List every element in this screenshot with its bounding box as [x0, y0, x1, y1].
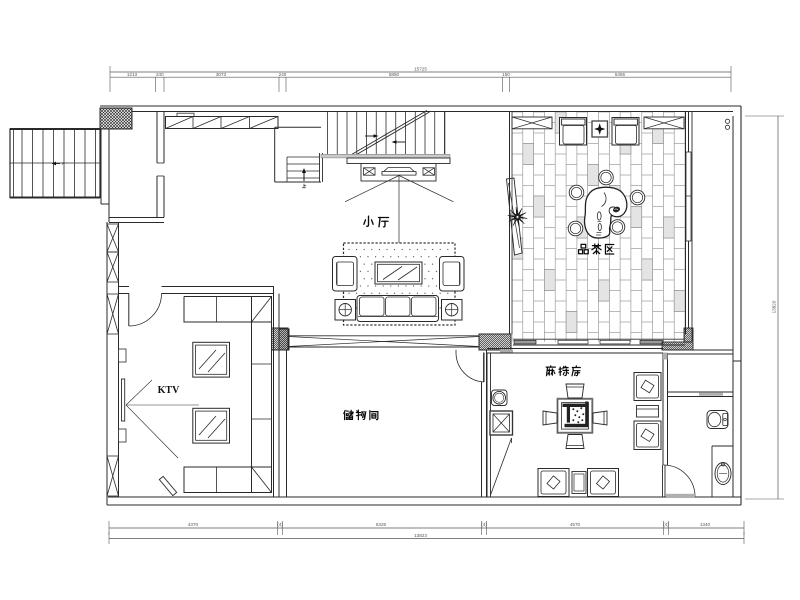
svg-text:(4): (4)	[663, 522, 669, 527]
svg-text:F: F	[62, 162, 64, 166]
svg-text:4570: 4570	[570, 522, 581, 527]
svg-text:KTV: KTV	[158, 385, 180, 396]
svg-text:1340: 1340	[700, 522, 711, 527]
svg-text:13823: 13823	[414, 533, 427, 538]
svg-text:150: 150	[502, 72, 510, 77]
svg-text:(4): (4)	[481, 522, 487, 527]
svg-text:13820: 13820	[772, 300, 777, 313]
svg-text:240: 240	[279, 72, 287, 77]
svg-text:(4): (4)	[277, 522, 283, 527]
svg-text:5850: 5850	[389, 72, 400, 77]
svg-text:240: 240	[156, 72, 164, 77]
svg-text:3073: 3073	[216, 72, 227, 77]
svg-text:5325: 5325	[376, 522, 387, 527]
svg-text:5455: 5455	[615, 72, 626, 77]
svg-text:1213: 1213	[127, 72, 138, 77]
svg-text:15725: 15725	[414, 66, 427, 71]
svg-text:4370: 4370	[188, 522, 199, 527]
